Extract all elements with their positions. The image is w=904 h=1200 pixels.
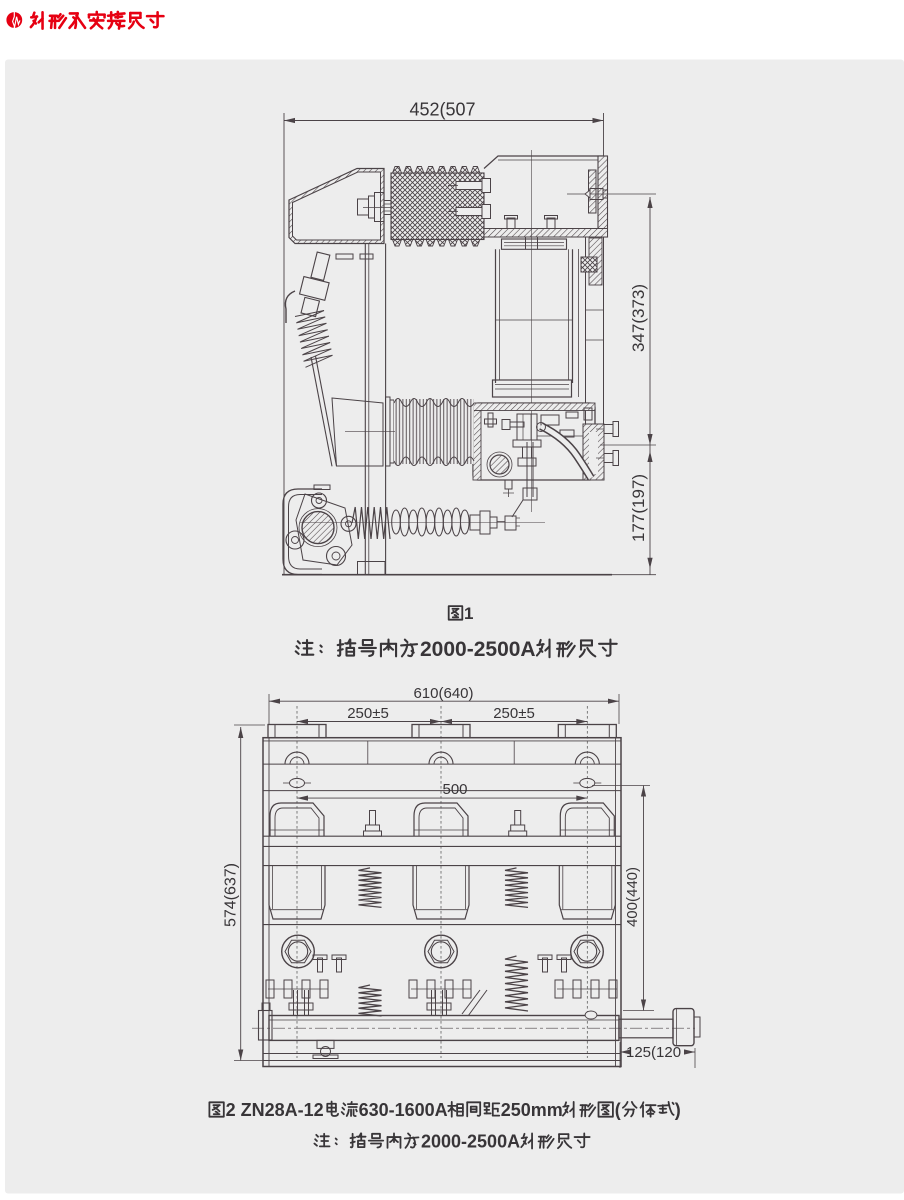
svg-text:250±5: 250±5	[347, 705, 389, 722]
svg-text:2000-2500A: 2000-2500A	[420, 638, 536, 661]
svg-text:630-1600A: 630-1600A	[359, 1100, 448, 1120]
svg-text:1: 1	[464, 604, 473, 623]
svg-text:2 ZN28A-12: 2 ZN28A-12	[226, 1100, 324, 1120]
svg-text:347(373): 347(373)	[629, 284, 648, 352]
svg-text:610(640): 610(640)	[413, 685, 473, 702]
svg-text:): )	[675, 1100, 681, 1120]
svg-text:250±5: 250±5	[493, 705, 535, 722]
svg-text:250mm: 250mm	[501, 1100, 563, 1120]
svg-text:(: (	[615, 1100, 621, 1120]
svg-text:400(440): 400(440)	[624, 867, 641, 927]
svg-text:2000-2500A: 2000-2500A	[421, 1132, 520, 1152]
svg-text:500: 500	[442, 781, 467, 798]
svg-text:177(197): 177(197)	[629, 474, 648, 542]
svg-text:452(507: 452(507	[410, 100, 476, 120]
svg-text:125(120: 125(120	[626, 1044, 681, 1061]
svg-text:574(637): 574(637)	[223, 863, 240, 927]
